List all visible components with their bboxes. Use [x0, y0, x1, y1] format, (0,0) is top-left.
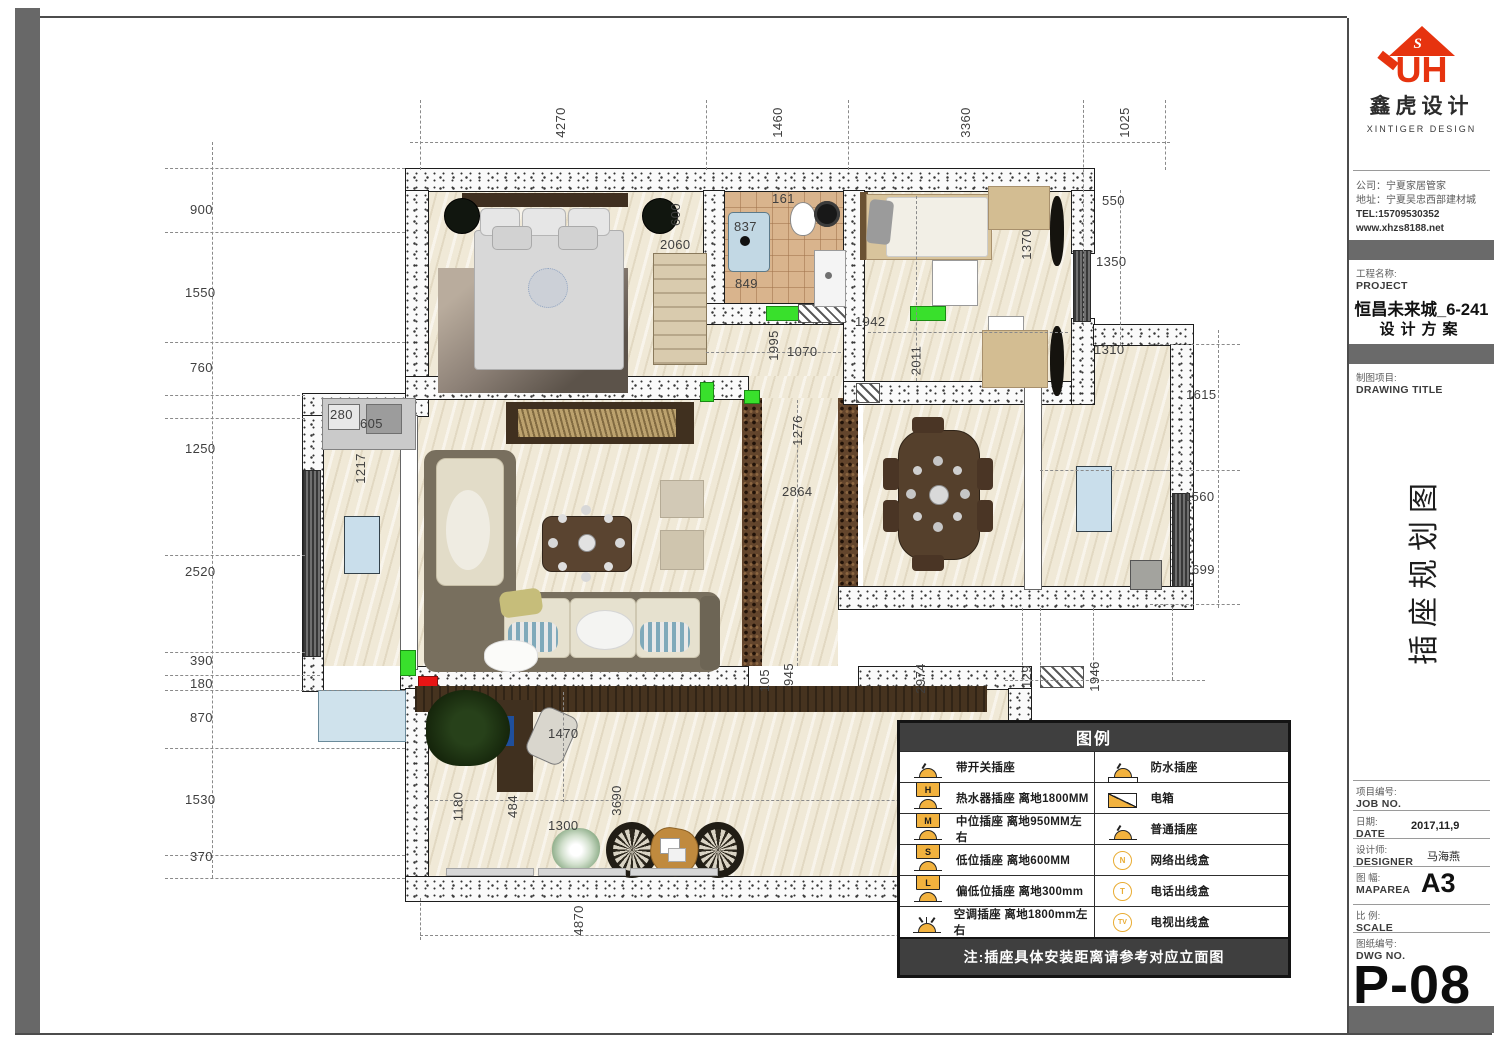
legend-row: 空调插座 离地1800mm左右 TV 电视出线盒	[900, 906, 1288, 937]
company-line: 公司：宁夏家居管家	[1356, 180, 1476, 194]
dim-label: 2864	[782, 484, 813, 499]
mattress	[886, 197, 988, 257]
legend-row: H 热水器插座 离地1800MM 电箱	[900, 782, 1288, 813]
legend-label: 电视出线盒	[1151, 914, 1210, 930]
hallway-tile-strip-left	[742, 398, 762, 666]
bulb	[913, 512, 922, 521]
dining-chair	[912, 555, 944, 571]
door-marker-bedroom	[700, 382, 714, 402]
bulb	[615, 538, 625, 548]
dim-guide	[1040, 608, 1041, 680]
nightstand-white	[932, 260, 978, 306]
divider	[1353, 170, 1490, 171]
distribution-box-icon	[1108, 793, 1137, 808]
bulb	[604, 514, 613, 523]
dim-guide	[212, 142, 213, 878]
wardrobe	[653, 253, 707, 365]
gray-pillow	[866, 199, 894, 245]
tv-outlet-icon: TV	[1113, 913, 1132, 932]
faucet	[740, 236, 750, 246]
dim-label: 1025	[1117, 107, 1132, 138]
dim-label: 900	[190, 202, 213, 217]
bulb	[906, 489, 916, 499]
door-hatch-bedroom2	[856, 383, 880, 403]
drawing-title-label: 制图项目: DRAWING TITLE	[1356, 370, 1443, 396]
logo-letter-s: S	[1414, 36, 1422, 53]
dim-label: 1560	[1184, 489, 1215, 504]
dim-label: 699	[1192, 562, 1215, 577]
wall-bedroom2-right-lower	[1071, 318, 1095, 405]
ac-socket-icon	[918, 923, 936, 932]
company-info: 公司：宁夏家居管家 地址：宁夏吴忠西部建材城 TEL:15709530352 w…	[1356, 180, 1476, 236]
dim-label: 837	[734, 219, 757, 234]
divider	[1353, 932, 1490, 933]
brand-name-cn: 鑫虎设计	[1349, 90, 1494, 120]
beige-rug-2	[660, 530, 704, 570]
dim-guide	[165, 652, 305, 653]
date-value: 2017,11,9	[1411, 820, 1459, 832]
bulb	[933, 522, 943, 532]
legend-row: S 低位插座 离地600MM N 网络出线盒	[900, 844, 1288, 875]
network-outlet-icon: N	[1113, 851, 1132, 870]
drawing-label-en: DRAWING TITLE	[1356, 384, 1443, 396]
maparea-label-cn: 图 幅:	[1356, 870, 1410, 884]
dim-label: 1250	[185, 441, 216, 456]
scale-label-cn: 比 例:	[1356, 908, 1393, 922]
date-label-cn: 日期:	[1356, 814, 1385, 828]
dim-label: 1217	[353, 453, 368, 484]
dim-guide	[1005, 680, 1205, 681]
door-marker-kitchen	[400, 650, 416, 676]
drawing-sheet: { "titleblock": { "brand": { "logo_s": "…	[0, 0, 1500, 1061]
dim-guide	[165, 418, 305, 419]
bulb	[604, 562, 613, 571]
dim-label: 370	[190, 849, 213, 864]
dim-guide	[1040, 470, 1170, 471]
door-marker-hallway	[744, 390, 760, 404]
project-name: 恒昌未来城_6-241	[1349, 296, 1494, 320]
legend-label: 中位插座 离地950MM左右	[956, 813, 1094, 845]
nightstand-left	[444, 198, 480, 234]
project-label-cn: 工程名称:	[1356, 266, 1408, 280]
dim-guide	[420, 100, 421, 170]
dim-label: 180	[190, 676, 213, 691]
plain-socket-icon	[1114, 830, 1132, 839]
bulb	[581, 505, 591, 515]
dim-label: 1300	[548, 818, 579, 833]
dim-label: 161	[772, 191, 795, 206]
dim-label: 4270	[553, 107, 568, 138]
toilet	[790, 202, 816, 236]
dim-guide	[868, 332, 1068, 333]
dim-label: 1470	[548, 726, 579, 741]
drawing-label-cn: 制图项目:	[1356, 370, 1443, 384]
dining-chandelier	[929, 485, 949, 505]
legend-row: 带开关插座 防水插座	[900, 751, 1288, 782]
designer-label-cn: 设计师:	[1356, 842, 1413, 856]
logo-letters: UH	[1349, 52, 1494, 88]
designer-value: 马海燕	[1427, 848, 1460, 864]
dim-guide	[1218, 330, 1219, 608]
dim-guide	[165, 555, 305, 556]
bulb	[558, 562, 567, 571]
mid-level-socket-icon: M	[916, 813, 940, 839]
dim-guide	[165, 748, 405, 749]
dim-label: 2060	[660, 237, 691, 252]
window-kitchen-left	[303, 470, 321, 657]
divider	[1353, 904, 1490, 905]
chair-black-2	[1050, 326, 1064, 396]
fluffy-pillow	[484, 640, 538, 672]
dim-label: 1276	[790, 415, 805, 446]
legend-label: 热水器插座 离地1800MM	[956, 790, 1089, 806]
blue-mat-right-room	[1076, 466, 1112, 532]
job-label-en: JOB NO.	[1356, 798, 1401, 810]
dim-label: 1946	[1087, 661, 1102, 692]
water-heater-socket-icon: H	[916, 782, 940, 808]
dim-guide	[165, 395, 305, 396]
dim-label: 870	[190, 710, 213, 725]
bulb	[953, 512, 962, 521]
dim-label: 390	[190, 653, 213, 668]
section-bar	[1349, 1006, 1494, 1033]
dim-label: 1350	[1096, 254, 1127, 269]
windowsill	[538, 868, 626, 876]
company-line: 地址：宁夏吴忠西部建材城	[1356, 194, 1476, 208]
dim-label: 1070	[787, 344, 818, 359]
dim-guide	[165, 232, 405, 233]
divider	[1353, 838, 1490, 839]
dim-label: 2974	[913, 663, 928, 694]
plant	[426, 690, 510, 766]
dining-chair	[883, 500, 899, 532]
dim-label: 1995	[766, 330, 781, 361]
dim-label: 3690	[609, 785, 624, 816]
legend-title: 图例	[900, 723, 1288, 751]
bulb	[558, 514, 567, 523]
maparea-value: A3	[1421, 868, 1456, 899]
brand-name-en: XINTIGER DESIGN	[1349, 124, 1494, 134]
scale-label: 比 例: SCALE	[1356, 908, 1393, 934]
dining-chair	[912, 417, 944, 433]
dining-chair	[883, 458, 899, 490]
dim-label: 1460	[770, 107, 785, 138]
tv-console-top	[518, 409, 676, 437]
white-round-pillow	[576, 610, 634, 650]
dim-guide	[410, 142, 1170, 143]
door-marker-bathroom	[766, 306, 802, 321]
switched-socket-icon	[919, 768, 937, 777]
window-right-room	[1172, 493, 1190, 587]
dim-label: 129	[1019, 665, 1034, 688]
dim-guide	[1150, 604, 1240, 605]
low-level-socket-icon: S	[916, 844, 940, 870]
striped-pillow-2	[640, 622, 690, 652]
legend-label: 空调插座 离地1800mm左右	[954, 906, 1094, 938]
sofa-armrest	[700, 596, 720, 670]
logo-roof-icon: S	[1389, 26, 1455, 56]
washing-machine	[814, 201, 840, 227]
dim-label: 1310	[1094, 342, 1125, 357]
company-phone: TEL:15709530352	[1356, 208, 1476, 222]
designer-label: 设计师: DESIGNER	[1356, 842, 1413, 868]
legend-label: 低位插座 离地600MM	[956, 852, 1070, 868]
wall-bedroom-left	[405, 190, 429, 400]
dim-guide	[420, 898, 421, 940]
dim-guide	[165, 675, 320, 676]
windowsill	[630, 868, 718, 876]
desk-bottom	[982, 330, 1048, 388]
chaise-pillow	[446, 490, 490, 570]
bulb	[581, 572, 591, 582]
legend-label: 带开关插座	[956, 759, 1015, 775]
legend-label: 防水插座	[1151, 759, 1198, 775]
dim-label: 600	[668, 203, 683, 226]
bed-headboard	[462, 193, 628, 207]
bulb	[933, 456, 943, 466]
dwg-label-cn: 图纸编号:	[1356, 936, 1405, 950]
company-website: www.xhzs8188.net	[1356, 222, 1476, 236]
dim-label: 1942	[855, 314, 886, 329]
bed-medallion	[528, 268, 568, 308]
dim-label: 550	[1102, 193, 1125, 208]
dim-label: 1550	[185, 285, 216, 300]
frame-bottom-line	[15, 1033, 1492, 1035]
title-block: S UH 鑫虎设计 XINTIGER DESIGN 公司：宁夏家居管家 地址：宁…	[1347, 18, 1494, 1033]
divider	[1353, 810, 1490, 811]
section-bar	[1349, 240, 1494, 260]
maparea-label-en: MAPAREA	[1356, 884, 1410, 896]
divider	[1353, 866, 1490, 867]
window-bedroom2-right	[1073, 250, 1091, 322]
dim-guide	[563, 692, 564, 802]
legend-row: L 偏低位插座 离地300mm T 电话出线盒	[900, 875, 1288, 906]
bulb	[960, 489, 970, 499]
paper	[668, 848, 686, 862]
windowsill	[446, 868, 534, 876]
dim-label: 3360	[958, 107, 973, 138]
dim-label: 760	[190, 360, 213, 375]
job-no-label: 项目编号: JOB NO.	[1356, 784, 1401, 810]
dim-guide	[165, 342, 405, 343]
dim-label: 1370	[1019, 229, 1034, 260]
legend-label: 电话出线盒	[1151, 883, 1210, 899]
dim-label: 1530	[185, 792, 216, 807]
dim-label: 484	[505, 795, 520, 818]
date-label: 日期: DATE	[1356, 814, 1385, 840]
bulb	[953, 466, 962, 475]
maparea-label: 图 幅: MAPAREA	[1356, 870, 1410, 896]
dim-guide	[1150, 344, 1240, 345]
balcony-unit	[318, 690, 406, 742]
drawing-title-vertical: 插座规划图	[1399, 505, 1443, 665]
dim-label: 280	[330, 407, 353, 422]
project-label-en: PROJECT	[1356, 280, 1408, 292]
dining-chair	[977, 458, 993, 490]
legend-label: 普通插座	[1151, 821, 1198, 837]
dim-label: 2520	[185, 564, 216, 579]
project-subtitle: 设计方案	[1349, 318, 1494, 339]
legend-label: 网络出线盒	[1151, 852, 1210, 868]
dim-guide	[706, 100, 707, 170]
legend-label: 偏低位插座 离地300mm	[956, 883, 1083, 899]
living-chandelier	[578, 534, 596, 552]
dim-guide	[1165, 100, 1166, 170]
pillow	[492, 226, 532, 250]
dim-label: 849	[735, 276, 758, 291]
gray-box	[1130, 560, 1162, 590]
dim-guide	[1172, 608, 1173, 680]
door-hatch-study	[1040, 666, 1084, 688]
waterproof-socket-icon	[1114, 768, 1132, 777]
section-bar	[1349, 344, 1494, 364]
dim-guide	[165, 168, 405, 169]
bulb	[548, 538, 558, 548]
phone-outlet-icon: T	[1113, 882, 1132, 901]
hallway-tile-strip-right	[838, 398, 858, 586]
dim-label: 105	[757, 669, 772, 692]
project-label: 工程名称: PROJECT	[1356, 266, 1408, 292]
job-label-cn: 项目编号:	[1356, 784, 1401, 798]
dim-label: 1180	[450, 792, 465, 822]
legend-row: M 中位插座 离地950MM左右 普通插座	[900, 813, 1288, 844]
legend-note: 注:插座具体安装距离请参考对应立面图	[900, 937, 1288, 975]
chair-black-1	[1050, 196, 1064, 266]
dim-guide	[165, 878, 405, 879]
dim-label: 945	[781, 663, 796, 686]
blue-mat-kitchen	[344, 516, 380, 574]
dim-label: 4870	[571, 905, 586, 936]
dim-guide	[848, 100, 849, 170]
beige-rug-1	[660, 480, 704, 518]
partition-kitchen-living	[400, 415, 418, 670]
divider	[1353, 780, 1490, 781]
dim-guide	[1083, 100, 1084, 326]
dim-label: 2011	[908, 346, 923, 376]
logo: S UH 鑫虎设计 XINTIGER DESIGN	[1349, 26, 1494, 134]
legend-label: 电箱	[1151, 790, 1175, 806]
dim-label: 1615	[1186, 387, 1217, 402]
pillow	[558, 226, 598, 250]
dining-chair	[977, 500, 993, 532]
desk-top	[988, 186, 1050, 230]
legend-table: 图例 带开关插座 防水插座 H 热水器插座 离地1800MM 电箱 M 中位插座…	[897, 720, 1291, 978]
bulb	[913, 466, 922, 475]
basin	[825, 272, 832, 279]
dim-label: 605	[360, 416, 383, 431]
lower-level-socket-icon: L	[916, 875, 940, 901]
